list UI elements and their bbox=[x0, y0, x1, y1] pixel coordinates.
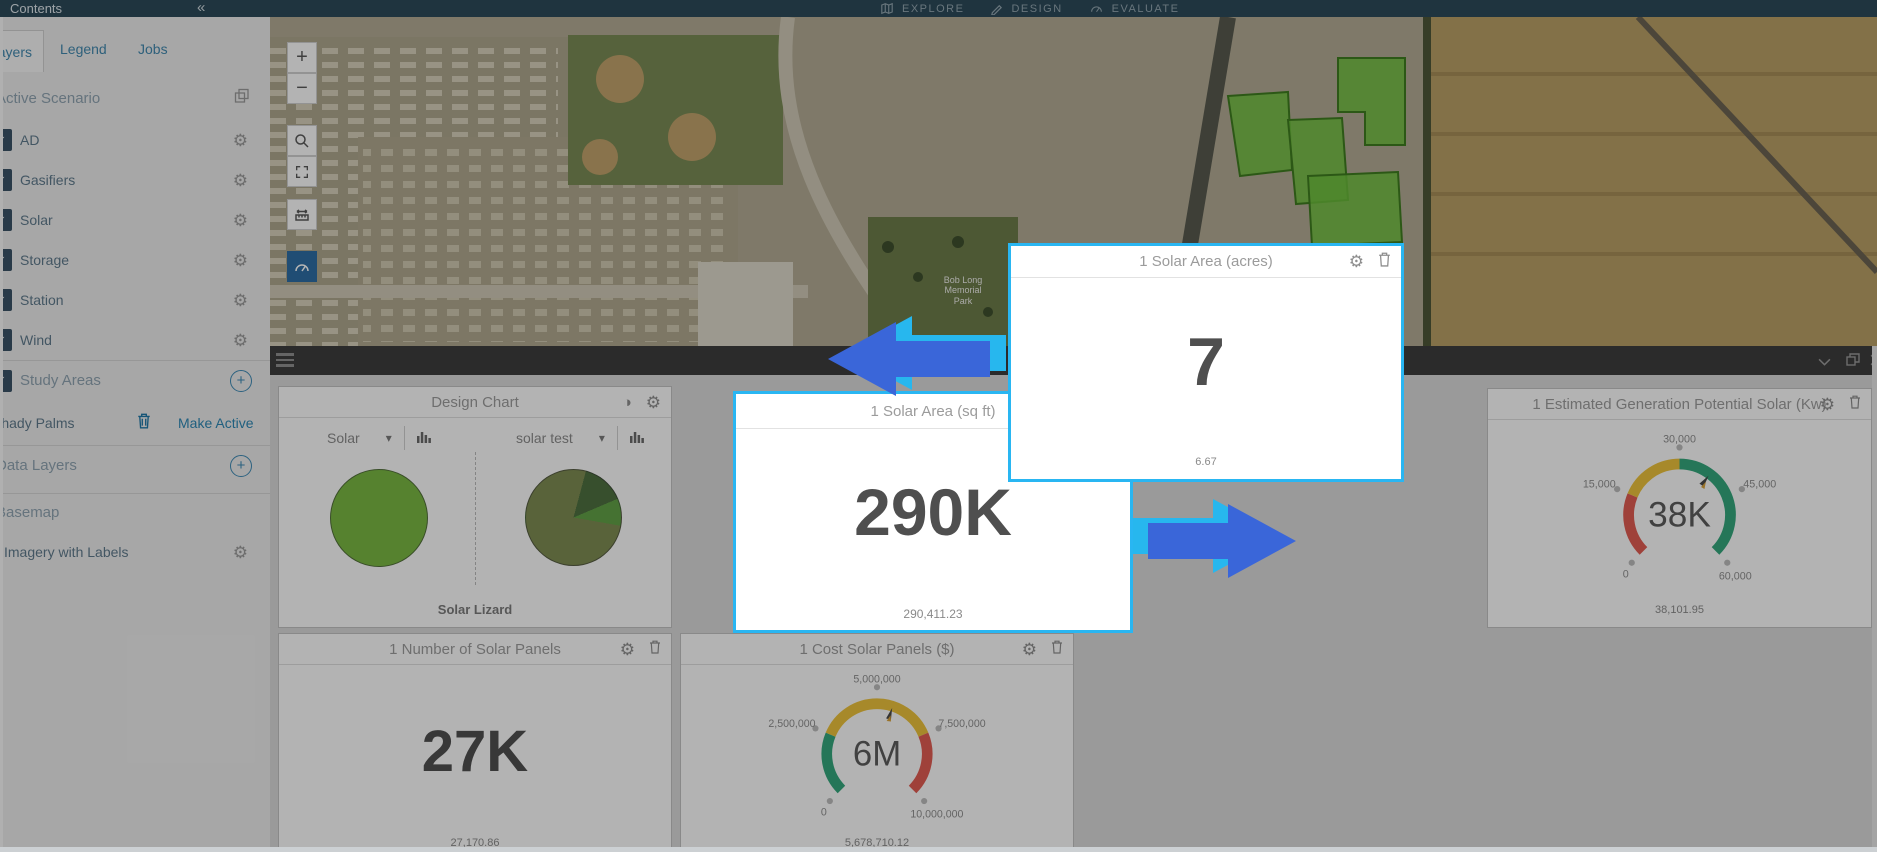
card-footer-value: 6.67 bbox=[1011, 456, 1401, 479]
trash-icon[interactable] bbox=[1378, 252, 1391, 271]
window-bottom-edge bbox=[0, 847, 1877, 852]
metric-value: 7 bbox=[1011, 268, 1401, 456]
left-annotation-arrow bbox=[818, 312, 1008, 407]
acres-card-header: 1 Solar Area (acres) ⚙ bbox=[1011, 246, 1401, 278]
app-window: Bob Long Memorial Park + − bbox=[0, 0, 1877, 852]
solar-area-acres-card[interactable]: 1 Solar Area (acres) ⚙ 7 6.67 bbox=[1008, 243, 1404, 482]
card-title: 1 Solar Area (acres) bbox=[1139, 253, 1272, 270]
right-annotation-arrow bbox=[1128, 496, 1303, 586]
card-footer-value: 290,411.23 bbox=[736, 607, 1130, 630]
gear-icon[interactable]: ⚙ bbox=[1349, 253, 1364, 270]
